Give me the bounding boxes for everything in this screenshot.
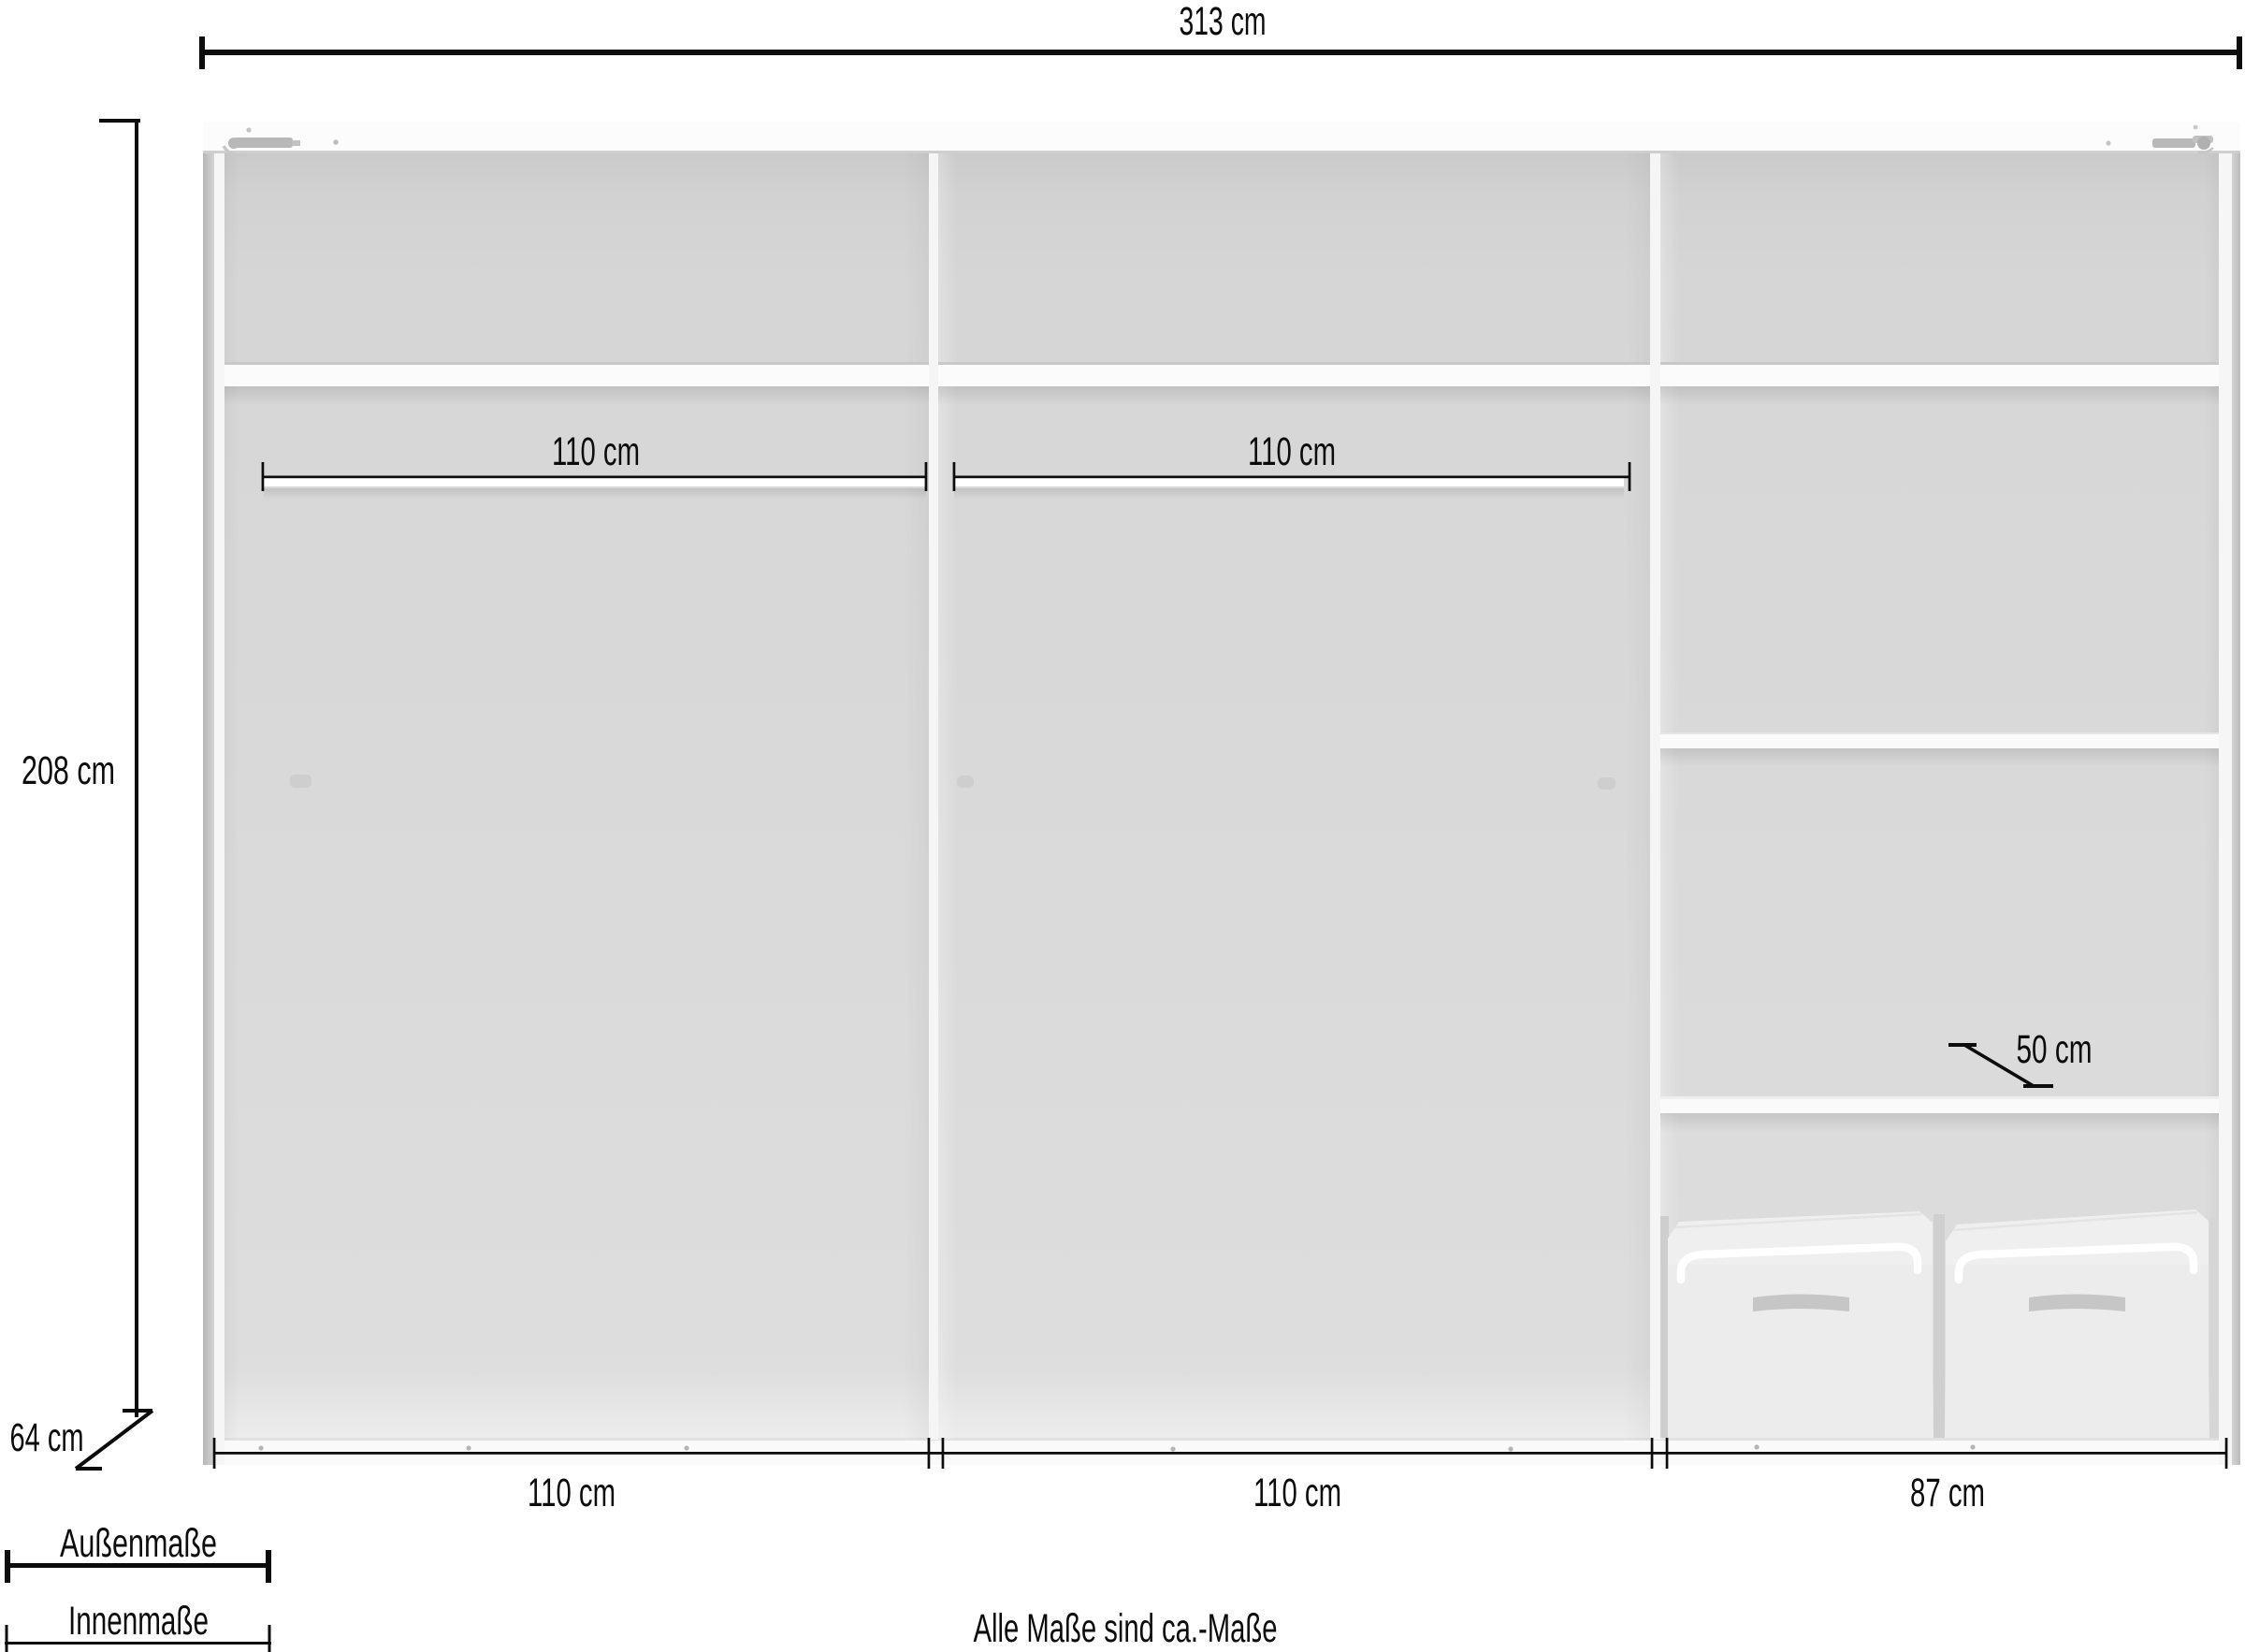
svg-text:Innenmaße: Innenmaße xyxy=(68,1599,209,1644)
svg-text:110 cm: 110 cm xyxy=(528,1471,616,1515)
svg-text:87 cm: 87 cm xyxy=(1910,1471,1985,1515)
svg-text:110 cm: 110 cm xyxy=(1248,429,1336,474)
svg-text:64 cm: 64 cm xyxy=(10,1415,84,1460)
svg-text:110 cm: 110 cm xyxy=(552,429,640,474)
svg-text:110 cm: 110 cm xyxy=(1253,1471,1341,1515)
svg-text:208 cm: 208 cm xyxy=(22,748,115,793)
svg-text:313 cm: 313 cm xyxy=(1180,0,1267,44)
svg-text:Alle Maße sind ca.-Maße: Alle Maße sind ca.-Maße xyxy=(974,1606,1278,1651)
svg-text:Außenmaße: Außenmaße xyxy=(60,1521,217,1566)
svg-text:50 cm: 50 cm xyxy=(2017,1027,2093,1072)
